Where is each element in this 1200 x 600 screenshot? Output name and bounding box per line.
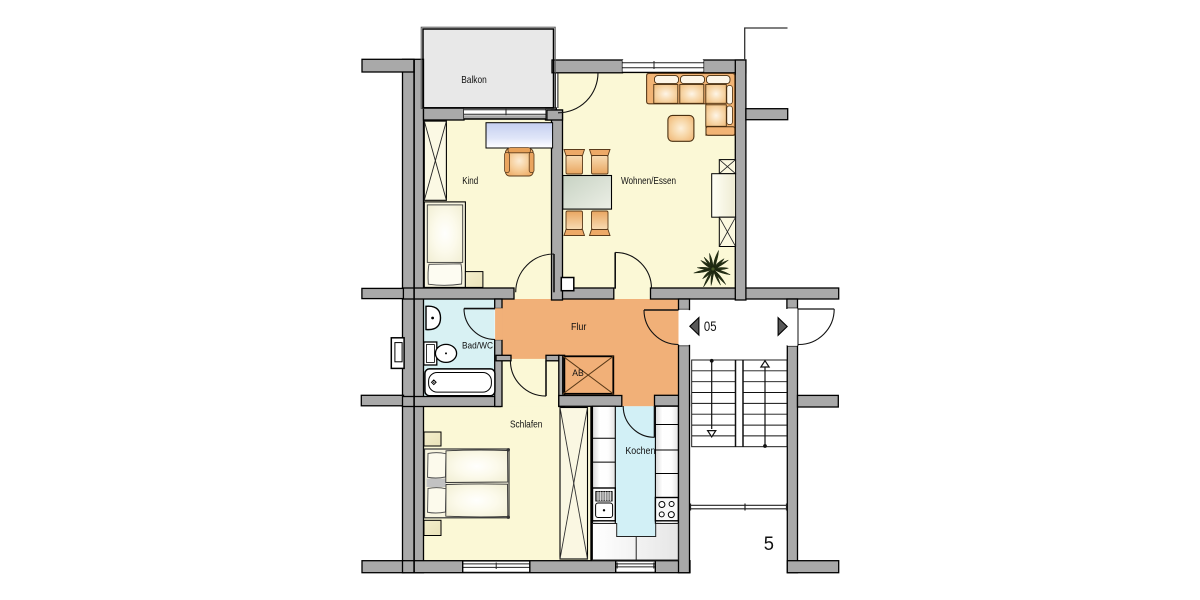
svg-text:Bad/WC: Bad/WC bbox=[462, 340, 493, 351]
svg-text:Wohnen/Essen: Wohnen/Essen bbox=[621, 176, 676, 187]
svg-text:Balkon: Balkon bbox=[461, 75, 487, 86]
svg-text:AB: AB bbox=[572, 368, 584, 379]
svg-text:Kind: Kind bbox=[462, 176, 478, 187]
svg-text:05: 05 bbox=[704, 319, 717, 335]
svg-text:Schlafen: Schlafen bbox=[510, 420, 543, 431]
svg-text:Kochen: Kochen bbox=[625, 446, 655, 457]
svg-text:Flur: Flur bbox=[571, 322, 587, 333]
svg-text:5: 5 bbox=[764, 534, 774, 555]
